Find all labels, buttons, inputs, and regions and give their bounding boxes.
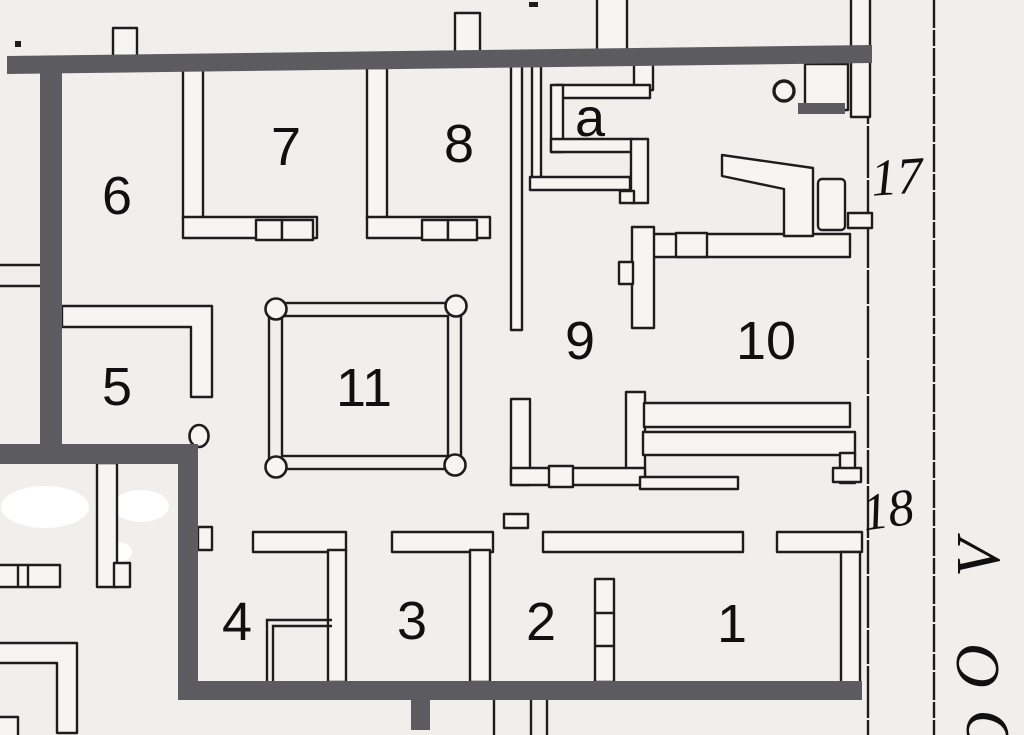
room-label-3: 3 xyxy=(397,594,427,648)
door-jamb xyxy=(619,262,633,284)
scan-patch xyxy=(1,486,89,528)
wall-stub xyxy=(198,527,212,550)
masonry-feature xyxy=(818,179,845,230)
door-jamb xyxy=(448,220,477,240)
room-label-10: 10 xyxy=(736,314,796,368)
street-letter-o-partial: O xyxy=(957,712,1019,735)
wall-room8-east xyxy=(511,66,522,330)
exterior-wall-south xyxy=(178,681,862,700)
wall-room2-east-pier xyxy=(595,579,614,682)
wall-stub xyxy=(455,13,480,52)
door-jamb xyxy=(256,220,282,240)
wall-pier-foot xyxy=(620,191,634,203)
scan-mark xyxy=(15,41,21,47)
column-base xyxy=(266,457,287,478)
party-wall-horizontal xyxy=(0,444,198,464)
party-wall-vertical xyxy=(178,444,198,700)
floor-plan-drawing xyxy=(0,0,1024,735)
wall-room2-north xyxy=(543,532,743,552)
room-label-a: a xyxy=(575,91,605,145)
door-jamb xyxy=(549,466,573,487)
scan-mark xyxy=(529,2,538,7)
wall-stub-south xyxy=(411,700,430,730)
wall-room3-east xyxy=(470,550,490,682)
wall-entrance18-jamb xyxy=(833,468,861,482)
room-label-4: 4 xyxy=(222,595,252,649)
wall-room1-east xyxy=(841,552,860,683)
room-label-9: 9 xyxy=(565,314,595,368)
wall-room9-east xyxy=(632,227,654,328)
column-base xyxy=(445,455,466,476)
wall-segment-thick xyxy=(798,103,845,114)
exterior-wall-west xyxy=(40,72,62,446)
wall-entrance17-south-jamb xyxy=(848,213,872,228)
wall-segment xyxy=(532,66,541,181)
wall-segment xyxy=(640,477,738,489)
column-base xyxy=(446,296,467,317)
entrance-label-18: 18 xyxy=(859,482,918,541)
wall-segment xyxy=(0,565,60,587)
column-base xyxy=(266,299,287,320)
door-jamb xyxy=(422,220,448,240)
wall-stub xyxy=(597,0,627,50)
wall-foot xyxy=(114,563,130,587)
wall-segment xyxy=(643,432,855,455)
entrance-label-17: 17 xyxy=(869,150,925,206)
column-base xyxy=(190,425,209,447)
room-label-7: 7 xyxy=(271,120,301,174)
street-letter-v: V xyxy=(948,539,1010,577)
wall-stub xyxy=(851,0,870,47)
room-label-1: 1 xyxy=(717,597,747,651)
door-jamb xyxy=(676,233,707,257)
room-label-5: 5 xyxy=(102,360,132,414)
door-jamb xyxy=(282,220,313,240)
wall-room1-north xyxy=(777,532,862,552)
street-letter-o: O xyxy=(947,645,1009,690)
room-label-11: 11 xyxy=(336,361,392,415)
wall-room9-south xyxy=(511,468,645,485)
room-label-8: 8 xyxy=(444,117,474,171)
wall-room4-east xyxy=(328,550,346,682)
wall-segment xyxy=(0,717,18,735)
wall-stub xyxy=(113,28,137,56)
cistern-mouth xyxy=(774,81,794,101)
wall-room7-west xyxy=(183,70,203,220)
room-label-6: 6 xyxy=(102,169,132,223)
floor-plan: 6 7 8 a 9 10 5 11 4 3 2 1 17 18 V O O xyxy=(0,0,1024,735)
scan-patch xyxy=(113,490,169,522)
wall-segment xyxy=(530,177,630,190)
room-label-2: 2 xyxy=(526,595,556,649)
wall-room8-west xyxy=(367,68,387,220)
wall-room10-south xyxy=(644,403,850,427)
wall-stub xyxy=(504,514,528,528)
